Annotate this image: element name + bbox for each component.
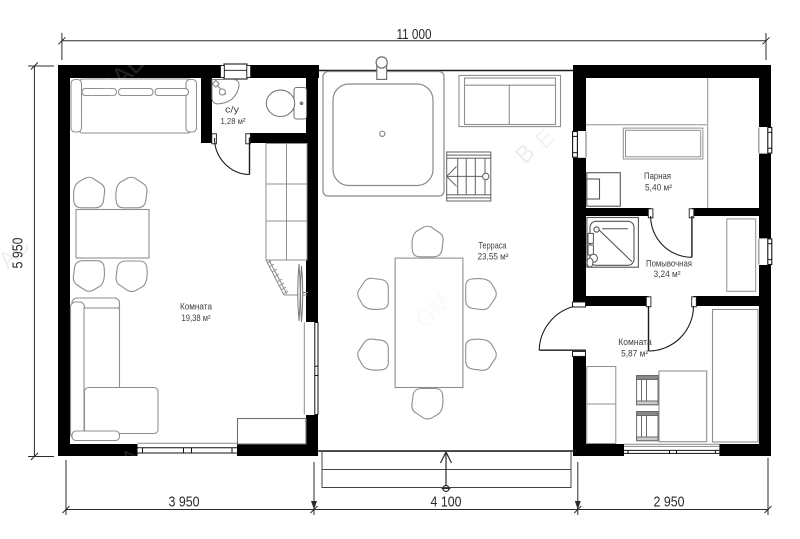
svg-text:Парная: Парная [644,171,671,181]
svg-text:2 950: 2 950 [654,494,685,511]
svg-text:1,28 м²: 1,28 м² [221,116,246,126]
svg-text:3,24 м²: 3,24 м² [654,269,681,279]
svg-text:с/у: с/у [225,105,240,115]
svg-text:3 950: 3 950 [169,494,200,511]
svg-text:4 100: 4 100 [431,494,462,511]
svg-text:5,87 м²: 5,87 м² [621,348,648,358]
svg-text:Комната: Комната [180,302,212,312]
svg-text:Помывочная: Помывочная [646,258,692,268]
svg-text:Комната: Комната [618,337,652,347]
svg-text:Терраса: Терраса [479,241,507,251]
svg-text:23,55 м²: 23,55 м² [478,252,509,262]
svg-text:19,38 м²: 19,38 м² [182,313,211,323]
svg-text:5,40 м²: 5,40 м² [645,182,672,192]
svg-text:11 000: 11 000 [397,26,432,43]
